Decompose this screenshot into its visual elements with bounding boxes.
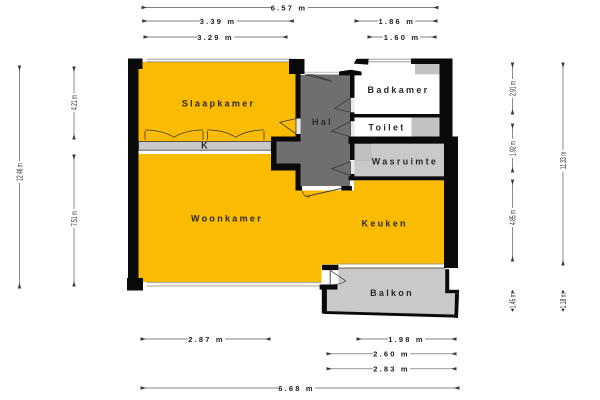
svg-text:Keuken: Keuken xyxy=(362,219,408,229)
svg-text:1.45 m: 1.45 m xyxy=(509,293,518,308)
svg-text:1.60 m: 1.60 m xyxy=(384,33,421,42)
svg-text:K: K xyxy=(201,140,210,150)
svg-text:7.51 m: 7.51 m xyxy=(71,211,80,226)
svg-text:Balkon: Balkon xyxy=(370,288,414,298)
svg-text:4.21 m: 4.21 m xyxy=(71,95,80,110)
svg-text:2.87 m: 2.87 m xyxy=(188,335,225,344)
svg-text:Wasruimte: Wasruimte xyxy=(372,157,438,167)
svg-text:Badkamer: Badkamer xyxy=(368,85,430,95)
svg-text:11.33 m: 11.33 m xyxy=(560,152,569,170)
svg-text:Hal: Hal xyxy=(312,117,333,127)
svg-text:12.46 m: 12.46 m xyxy=(16,163,25,181)
svg-text:Slaapkamer: Slaapkamer xyxy=(182,98,256,108)
svg-text:1.92 m: 1.92 m xyxy=(509,141,518,156)
svg-text:3.39 m: 3.39 m xyxy=(200,17,237,26)
svg-text:2.83 m: 2.83 m xyxy=(373,365,410,374)
svg-text:6.68 m: 6.68 m xyxy=(278,384,315,393)
svg-text:6.57 m: 6.57 m xyxy=(271,3,308,12)
svg-text:Woonkamer: Woonkamer xyxy=(191,213,263,223)
svg-text:1.86 m: 1.86 m xyxy=(379,17,416,26)
svg-text:4.85 m: 4.85 m xyxy=(509,210,518,225)
svg-text:2.60 m: 2.60 m xyxy=(373,350,410,359)
svg-text:Toilet: Toilet xyxy=(368,123,405,133)
svg-text:3.29 m: 3.29 m xyxy=(197,33,234,42)
svg-text:1.18 m: 1.18 m xyxy=(560,293,569,308)
svg-text:1.98 m: 1.98 m xyxy=(388,335,425,344)
svg-text:2.91 m: 2.91 m xyxy=(509,81,518,96)
